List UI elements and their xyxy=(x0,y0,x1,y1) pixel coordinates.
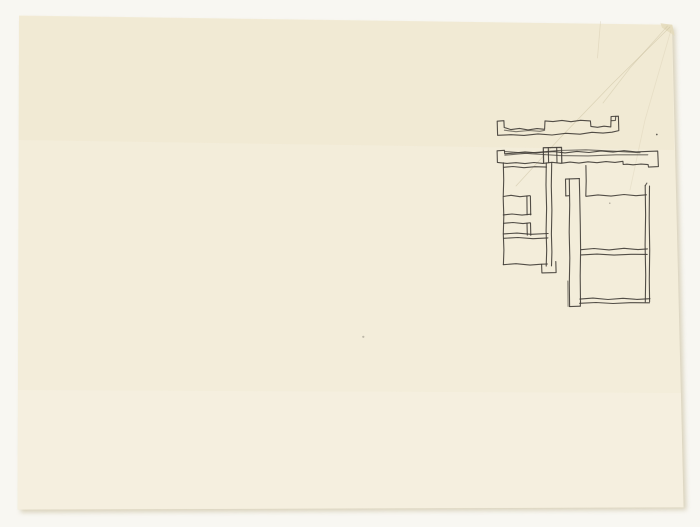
room-right-edge-a xyxy=(645,186,646,302)
scan-surface xyxy=(0,0,700,527)
ink-speck xyxy=(656,134,658,136)
central-wall-b xyxy=(551,163,552,266)
paper-tint-top xyxy=(19,16,674,150)
ink-speck xyxy=(609,203,610,204)
paper-tint-bottom xyxy=(18,390,684,509)
ink-speck xyxy=(362,336,364,338)
room-divider-2 xyxy=(503,214,531,215)
room-right-edge-b xyxy=(649,186,650,302)
wide-bar-left-edge xyxy=(569,179,570,307)
scanned-architectural-sketch xyxy=(0,0,700,527)
